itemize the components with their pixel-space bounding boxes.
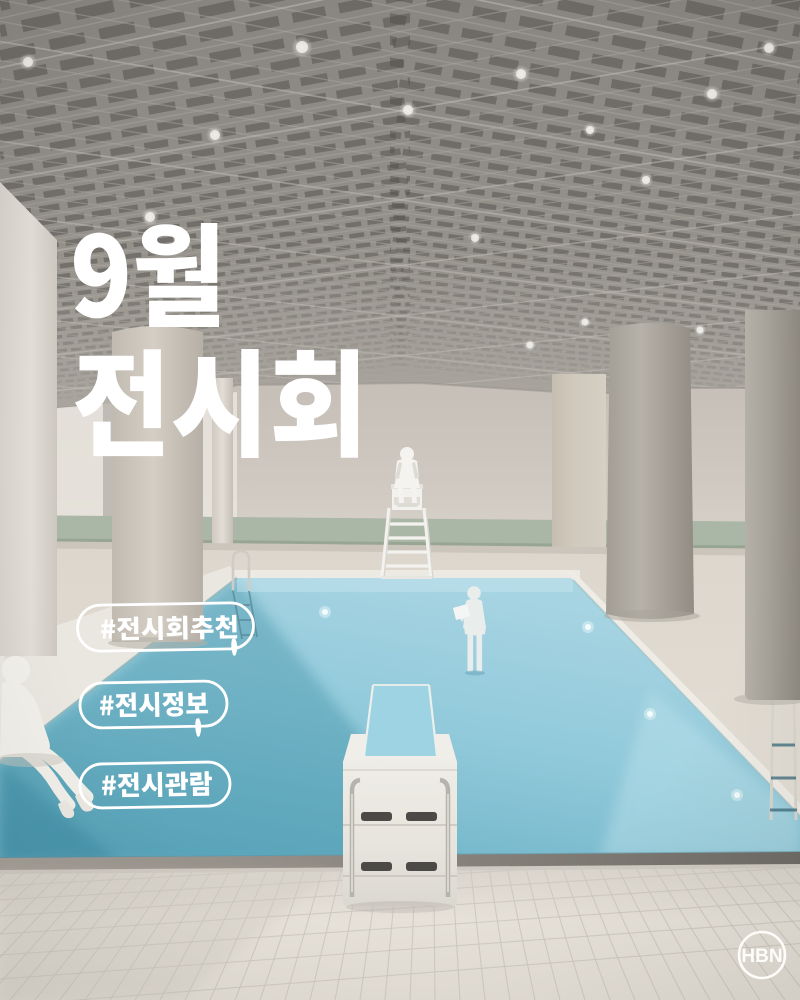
svg-text:HBN: HBN — [741, 946, 782, 967]
